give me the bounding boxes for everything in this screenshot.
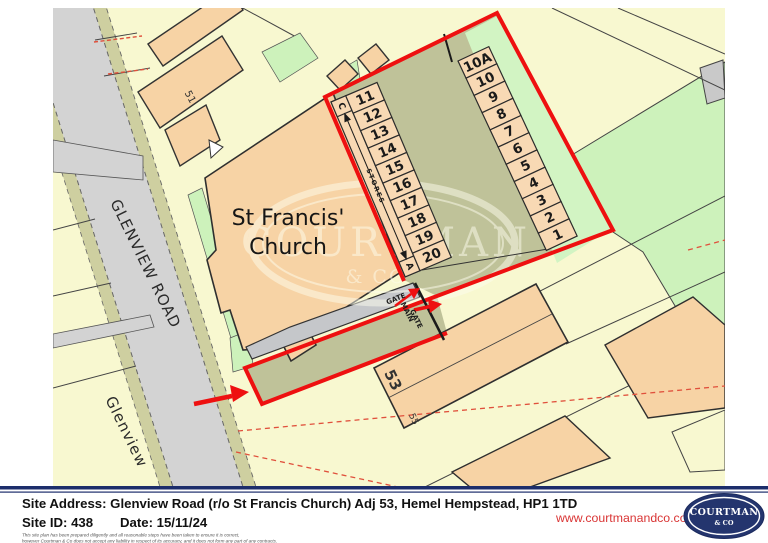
map-area: COURTMAN & CO C A STORES [8,0,725,487]
footer-disclaimer-line1: This site plan has been prepared diligen… [22,533,240,538]
footer-rule-thin [0,492,768,493]
church-label-line2: Church [249,235,327,260]
footer-website-link[interactable]: www.courtmanandco.com [555,511,697,525]
site-plan-page: COURTMAN & CO C A STORES [0,0,768,543]
footer-date: Date: 15/11/24 [120,515,208,530]
courtman-logo: COURTMAN & CO [684,494,764,539]
logo-text-co: & CO [715,519,734,527]
footer-rule-thick [0,486,768,490]
site-plan-canvas: COURTMAN & CO C A STORES [0,0,768,543]
logo-text-courtman: COURTMAN [690,507,759,518]
footer-site-id: Site ID: 438 [22,515,93,530]
footer-disclaimer-line2: however Courtman & Co does not accept an… [22,539,277,543]
church-label-line1: St Francis' [232,206,345,231]
footer-site-address: Site Address: Glenview Road (r/o St Fran… [22,496,577,511]
